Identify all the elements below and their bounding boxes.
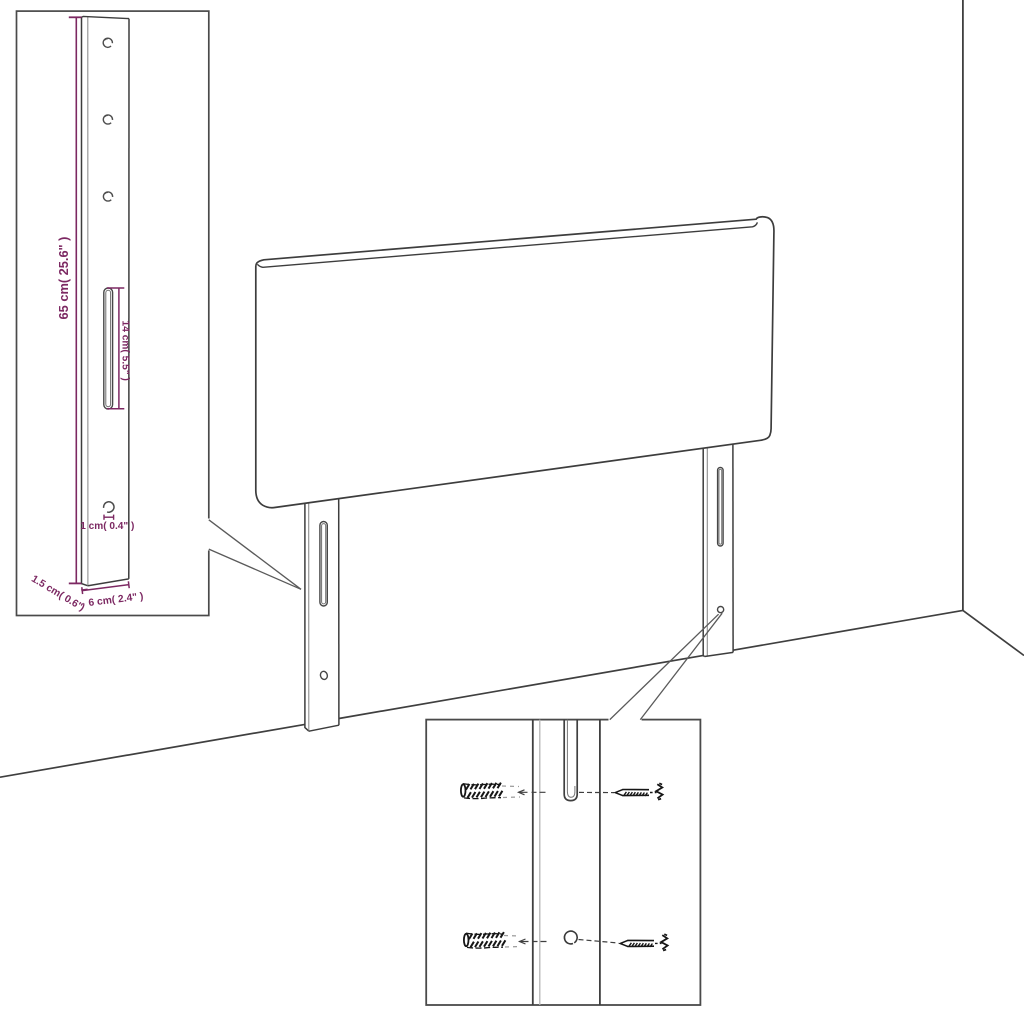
svg-text:14 cm( 5.5" ): 14 cm( 5.5" ) (120, 321, 131, 381)
svg-text:1 cm( 0.4" ): 1 cm( 0.4" ) (80, 521, 134, 532)
svg-text:65 cm( 25.6" ): 65 cm( 25.6" ) (56, 237, 71, 320)
